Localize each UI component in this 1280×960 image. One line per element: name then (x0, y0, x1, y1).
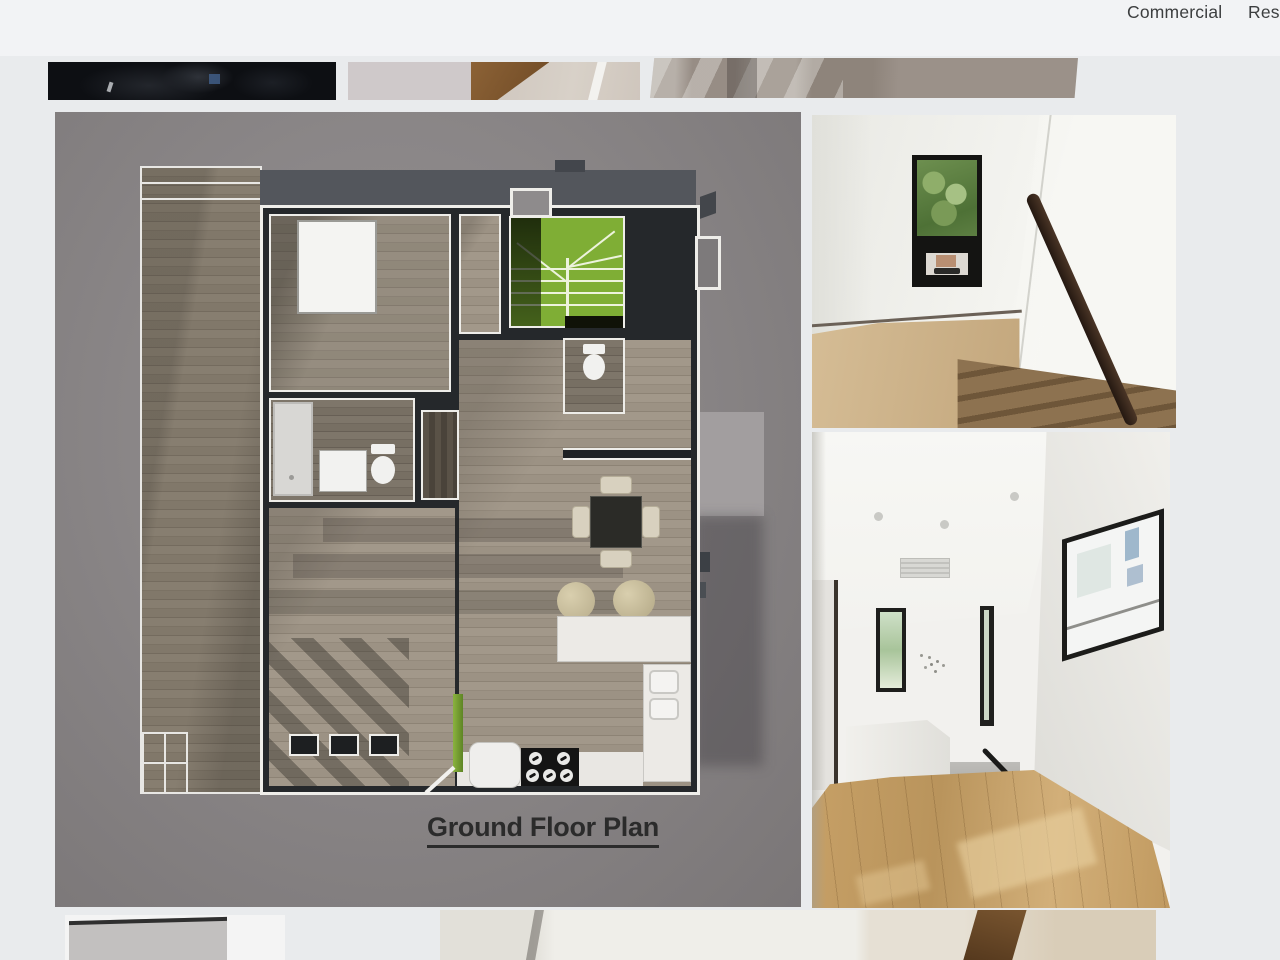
cooktop (521, 748, 579, 786)
thumbnail-dark-edge-line (524, 910, 544, 960)
thumbnail-dark-interior[interactable] (48, 62, 336, 100)
dining-wall-stub (563, 448, 691, 460)
slit-window-glass (984, 610, 989, 720)
toilet-tank (583, 344, 605, 354)
bed (297, 220, 377, 314)
window-content-panel (1077, 544, 1111, 598)
chandelier-decal (920, 654, 950, 680)
burner-icon (543, 769, 556, 782)
thumbnail-gray-door[interactable] (65, 915, 285, 960)
floor-square-3 (371, 736, 397, 754)
ceiling-vent (900, 558, 950, 578)
far-vertical-window (876, 608, 906, 692)
thumbnail-dark-band (727, 58, 757, 98)
narrow-slit-window (980, 606, 994, 726)
window-pane-lower (923, 250, 971, 278)
thumbnail-staircase-wide[interactable] (650, 58, 1078, 98)
dining-chair-top (600, 476, 632, 494)
bathroom-toilet-bowl (371, 456, 395, 484)
thumbnail-dark-highlights (48, 62, 336, 100)
window-view-building (936, 255, 956, 267)
ground-floor-plan-image[interactable]: Ground Floor Plan (55, 112, 801, 907)
roof-corner-detail (700, 191, 716, 219)
staircase-green (509, 216, 625, 328)
kitchen-island (557, 616, 691, 662)
thumbnail-stair-corner[interactable] (348, 62, 640, 100)
bathroom-vanity (319, 450, 367, 492)
window-blue-paper-1 (1125, 527, 1139, 561)
roof-chimney (555, 160, 585, 172)
thumbnail-door-panel (69, 917, 227, 960)
house-footprint (260, 205, 700, 795)
fridge (469, 742, 521, 788)
floor-square-2 (331, 736, 357, 754)
recessed-light (874, 512, 883, 521)
dining-chair-bottom (600, 550, 632, 568)
window-mullion (1067, 599, 1159, 630)
shower-drain (289, 475, 294, 480)
burner-icon (557, 752, 570, 765)
side-window-nub (695, 236, 721, 290)
burner-icon (526, 769, 539, 782)
top-nav: Commercial Res (0, 0, 1280, 56)
hallway-floor (459, 214, 501, 334)
burner-icon (529, 752, 542, 765)
thumbnail-blue-mark (209, 74, 220, 84)
roof-band (260, 170, 696, 210)
thumbnail-stair-stringer[interactable] (440, 910, 1156, 960)
recessed-light (940, 520, 949, 529)
wc-floor (563, 338, 625, 414)
dining-table (590, 496, 642, 548)
nav-item-residential-truncated[interactable]: Res (1248, 2, 1280, 23)
dining-chair-right (642, 506, 660, 538)
armchair-left (557, 582, 595, 620)
floor-shadow-band-2 (293, 554, 623, 578)
window-blue-paper-2 (1127, 564, 1143, 587)
stair-shadow-column (511, 218, 541, 326)
entry-steps-shadow (269, 638, 409, 786)
landing-window (510, 188, 552, 218)
photo-stairwell-window[interactable] (812, 115, 1176, 428)
plan-title: Ground Floor Plan (427, 812, 659, 848)
window-pane-foliage (917, 160, 977, 236)
window-divider (917, 236, 977, 244)
stairwell-window-frame (912, 155, 982, 287)
window-view-chair (934, 268, 960, 274)
nav-item-commercial[interactable]: Commercial (1127, 2, 1222, 23)
shower (273, 402, 313, 496)
deck-top-band (142, 168, 260, 184)
chandelier-dots (920, 654, 923, 657)
deck-strip (140, 166, 262, 794)
deck-top-band-2 (142, 184, 260, 200)
toilet-bowl (583, 354, 605, 380)
deck-grid-section (142, 732, 188, 792)
floor-square-1 (291, 736, 317, 754)
left-edge-shade (812, 432, 826, 908)
bathroom-floor (269, 398, 415, 502)
burner-icon (560, 769, 573, 782)
thumbnail-wood-stringer (960, 910, 1027, 960)
sink-basin-2 (649, 698, 679, 720)
stair-void (565, 316, 623, 328)
photo-upper-landing[interactable] (812, 432, 1170, 908)
building-shadow-light (700, 412, 764, 516)
green-door-panel (453, 694, 463, 772)
sink-basin-1 (649, 670, 679, 694)
armchair-right (613, 580, 655, 620)
recessed-light (1010, 492, 1019, 501)
dining-chair-left (572, 506, 590, 538)
page: Commercial Res (0, 0, 1280, 960)
closet-floor (421, 410, 459, 500)
bathroom-toilet-tank (371, 444, 395, 454)
